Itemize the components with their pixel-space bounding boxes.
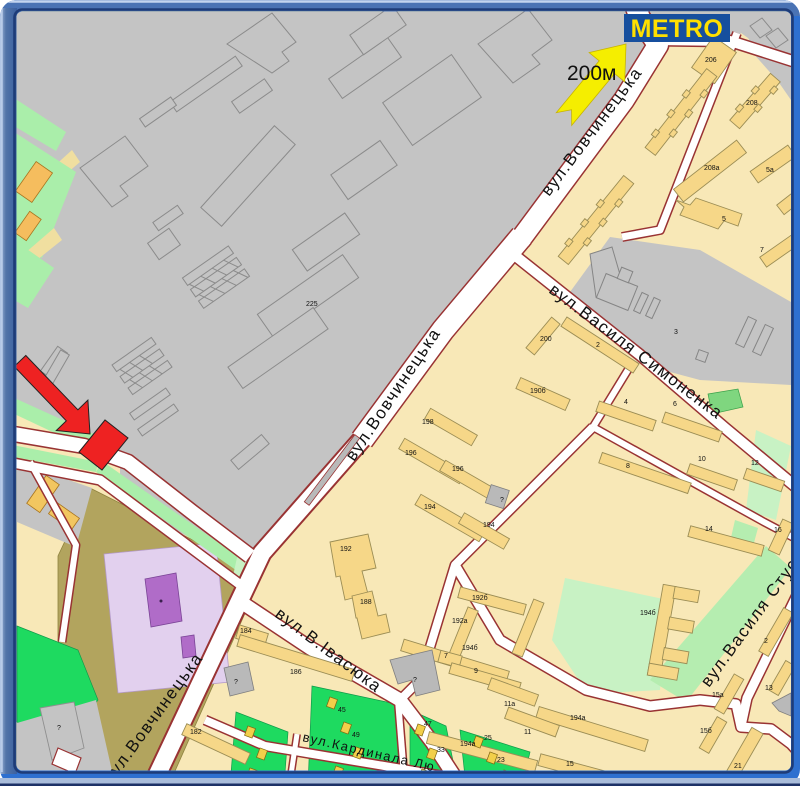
svg-text:15а: 15а [712,692,724,699]
svg-text:?: ? [413,677,417,684]
svg-text:196: 196 [452,466,464,473]
svg-text:198: 198 [422,419,434,426]
svg-text:2: 2 [596,342,600,349]
svg-text:11: 11 [524,729,531,736]
svg-text:5а: 5а [766,167,774,174]
svg-text:194: 194 [424,504,436,511]
svg-text:194а: 194а [460,741,476,748]
svg-text:188: 188 [360,599,372,606]
svg-text:23: 23 [497,757,505,764]
svg-text:4: 4 [624,399,628,406]
svg-text:2: 2 [764,638,768,645]
svg-text:196: 196 [405,450,417,457]
svg-text:?: ? [500,497,504,504]
svg-text:5: 5 [722,216,726,223]
svg-text:15б: 15б [700,727,712,735]
svg-text:208: 208 [746,100,758,107]
svg-text:13: 13 [765,685,773,692]
svg-text:190б: 190б [530,387,546,395]
svg-text:200м: 200м [567,62,616,85]
svg-text:METRO: METRO [631,15,724,43]
svg-text:11а: 11а [504,701,515,708]
svg-text:33: 33 [437,747,445,754]
svg-text:15: 15 [566,761,574,768]
svg-text:49: 49 [352,732,360,739]
svg-text:?: ? [234,679,238,686]
svg-text:206: 206 [705,57,717,64]
svg-text:25: 25 [484,735,492,742]
svg-text:186: 186 [290,669,302,676]
svg-text:208а: 208а [704,165,720,172]
svg-text:12: 12 [751,460,759,467]
svg-text:6: 6 [673,401,677,408]
svg-text:47: 47 [424,721,432,728]
svg-text:194б: 194б [462,644,478,652]
svg-text:16: 16 [774,527,782,534]
svg-text:192б: 192б [472,594,488,602]
svg-text:7: 7 [760,247,764,254]
svg-text:194а: 194а [570,715,586,722]
svg-text:182: 182 [190,729,202,736]
svg-text:14: 14 [705,526,713,533]
svg-text:10: 10 [698,456,706,463]
svg-text:184: 184 [240,628,252,635]
svg-text:21: 21 [734,763,742,770]
svg-text:9: 9 [474,668,478,675]
svg-text:225: 225 [306,301,318,308]
svg-text:192а: 192а [452,618,468,625]
svg-text:45: 45 [338,707,346,714]
svg-text:8: 8 [626,463,630,470]
svg-text:7: 7 [444,653,448,660]
svg-text:192: 192 [340,546,352,553]
svg-text:194: 194 [483,522,495,529]
svg-text:3: 3 [674,329,678,336]
svg-text:194б: 194б [640,609,656,617]
svg-text:200: 200 [540,336,552,343]
svg-text:?: ? [57,725,61,732]
